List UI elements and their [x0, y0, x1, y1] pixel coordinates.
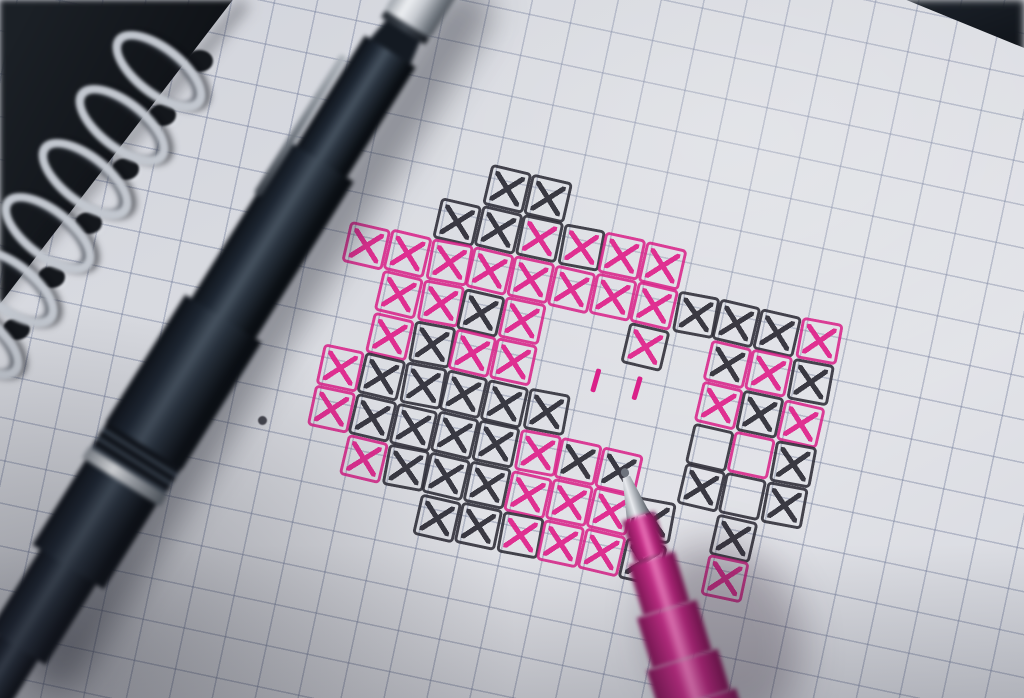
x-mark-pink [783, 406, 819, 442]
x-mark-black [793, 365, 828, 400]
grid-cell [795, 317, 844, 366]
grid-cell [717, 472, 767, 522]
x-mark-black [679, 297, 714, 332]
pink-dash [590, 368, 601, 392]
x-mark-pink [372, 319, 408, 355]
x-mark-black [742, 397, 778, 433]
x-mark-pink [323, 350, 359, 386]
grid-cell [454, 501, 504, 551]
x-mark-black [428, 458, 464, 494]
x-mark-pink [701, 388, 737, 424]
x-mark-black [683, 470, 719, 506]
photo-scene [0, 0, 1024, 698]
x-mark-black [486, 386, 522, 422]
grid-cell [330, 475, 381, 526]
x-mark-pink [513, 262, 549, 298]
x-mark-black [776, 447, 811, 482]
x-mark-pink [636, 288, 672, 324]
x-mark-black [489, 171, 525, 207]
x-mark-pink [346, 441, 382, 477]
x-mark-black [446, 376, 482, 412]
x-mark-black [363, 359, 399, 395]
x-mark-black [461, 508, 497, 544]
x-mark-pink [454, 335, 490, 371]
grid-cell [804, 275, 853, 324]
x-mark-pink [627, 329, 663, 365]
x-mark-black [396, 410, 432, 446]
x-mark-black [529, 394, 564, 429]
x-mark-black [406, 368, 441, 403]
grid-cell [760, 481, 809, 530]
x-mark-black [480, 212, 516, 248]
x-mark-pink [314, 391, 350, 427]
x-mark-black [415, 327, 450, 362]
x-mark-pink [554, 271, 590, 307]
pink-dash [631, 376, 643, 400]
grid-cell [488, 337, 538, 387]
x-mark-pink [496, 344, 532, 380]
x-mark-pink [595, 279, 631, 315]
x-mark-pink [552, 485, 588, 521]
x-mark-pink [510, 477, 546, 513]
x-mark-pink [522, 221, 558, 257]
ink-dot [258, 416, 267, 425]
x-mark-pink [423, 286, 458, 321]
pink-pen-metal-tip [615, 473, 650, 520]
grid-cell [812, 234, 861, 283]
grid-cell [786, 358, 835, 407]
x-mark-pink [520, 435, 555, 470]
x-mark-pink [503, 518, 538, 553]
x-mark-pink [604, 238, 640, 274]
x-mark-pink [472, 253, 508, 289]
x-mark-pink [381, 277, 417, 313]
x-mark-black [767, 488, 802, 523]
x-mark-pink [432, 245, 467, 280]
x-mark-black [469, 467, 505, 503]
x-mark-black [709, 346, 745, 382]
x-mark-black [478, 426, 514, 462]
x-mark-black [530, 181, 566, 217]
x-mark-black [419, 501, 455, 537]
x-mark-pink [564, 230, 599, 265]
x-mark-black [759, 315, 795, 351]
grid-cell [761, 266, 811, 316]
x-mark-black [355, 400, 391, 436]
x-mark-pink [645, 248, 681, 284]
x-mark-black [389, 450, 424, 485]
grid-cell [769, 440, 818, 489]
x-mark-pink [802, 324, 837, 359]
x-mark-black [560, 444, 596, 480]
x-mark-black [463, 295, 499, 331]
x-mark-black [437, 417, 473, 453]
x-mark-black [439, 204, 475, 240]
x-mark-pink [751, 355, 787, 391]
x-mark-pink [543, 526, 579, 562]
x-mark-pink [504, 303, 540, 339]
x-mark-black [718, 305, 754, 341]
x-mark-pink [390, 235, 426, 271]
